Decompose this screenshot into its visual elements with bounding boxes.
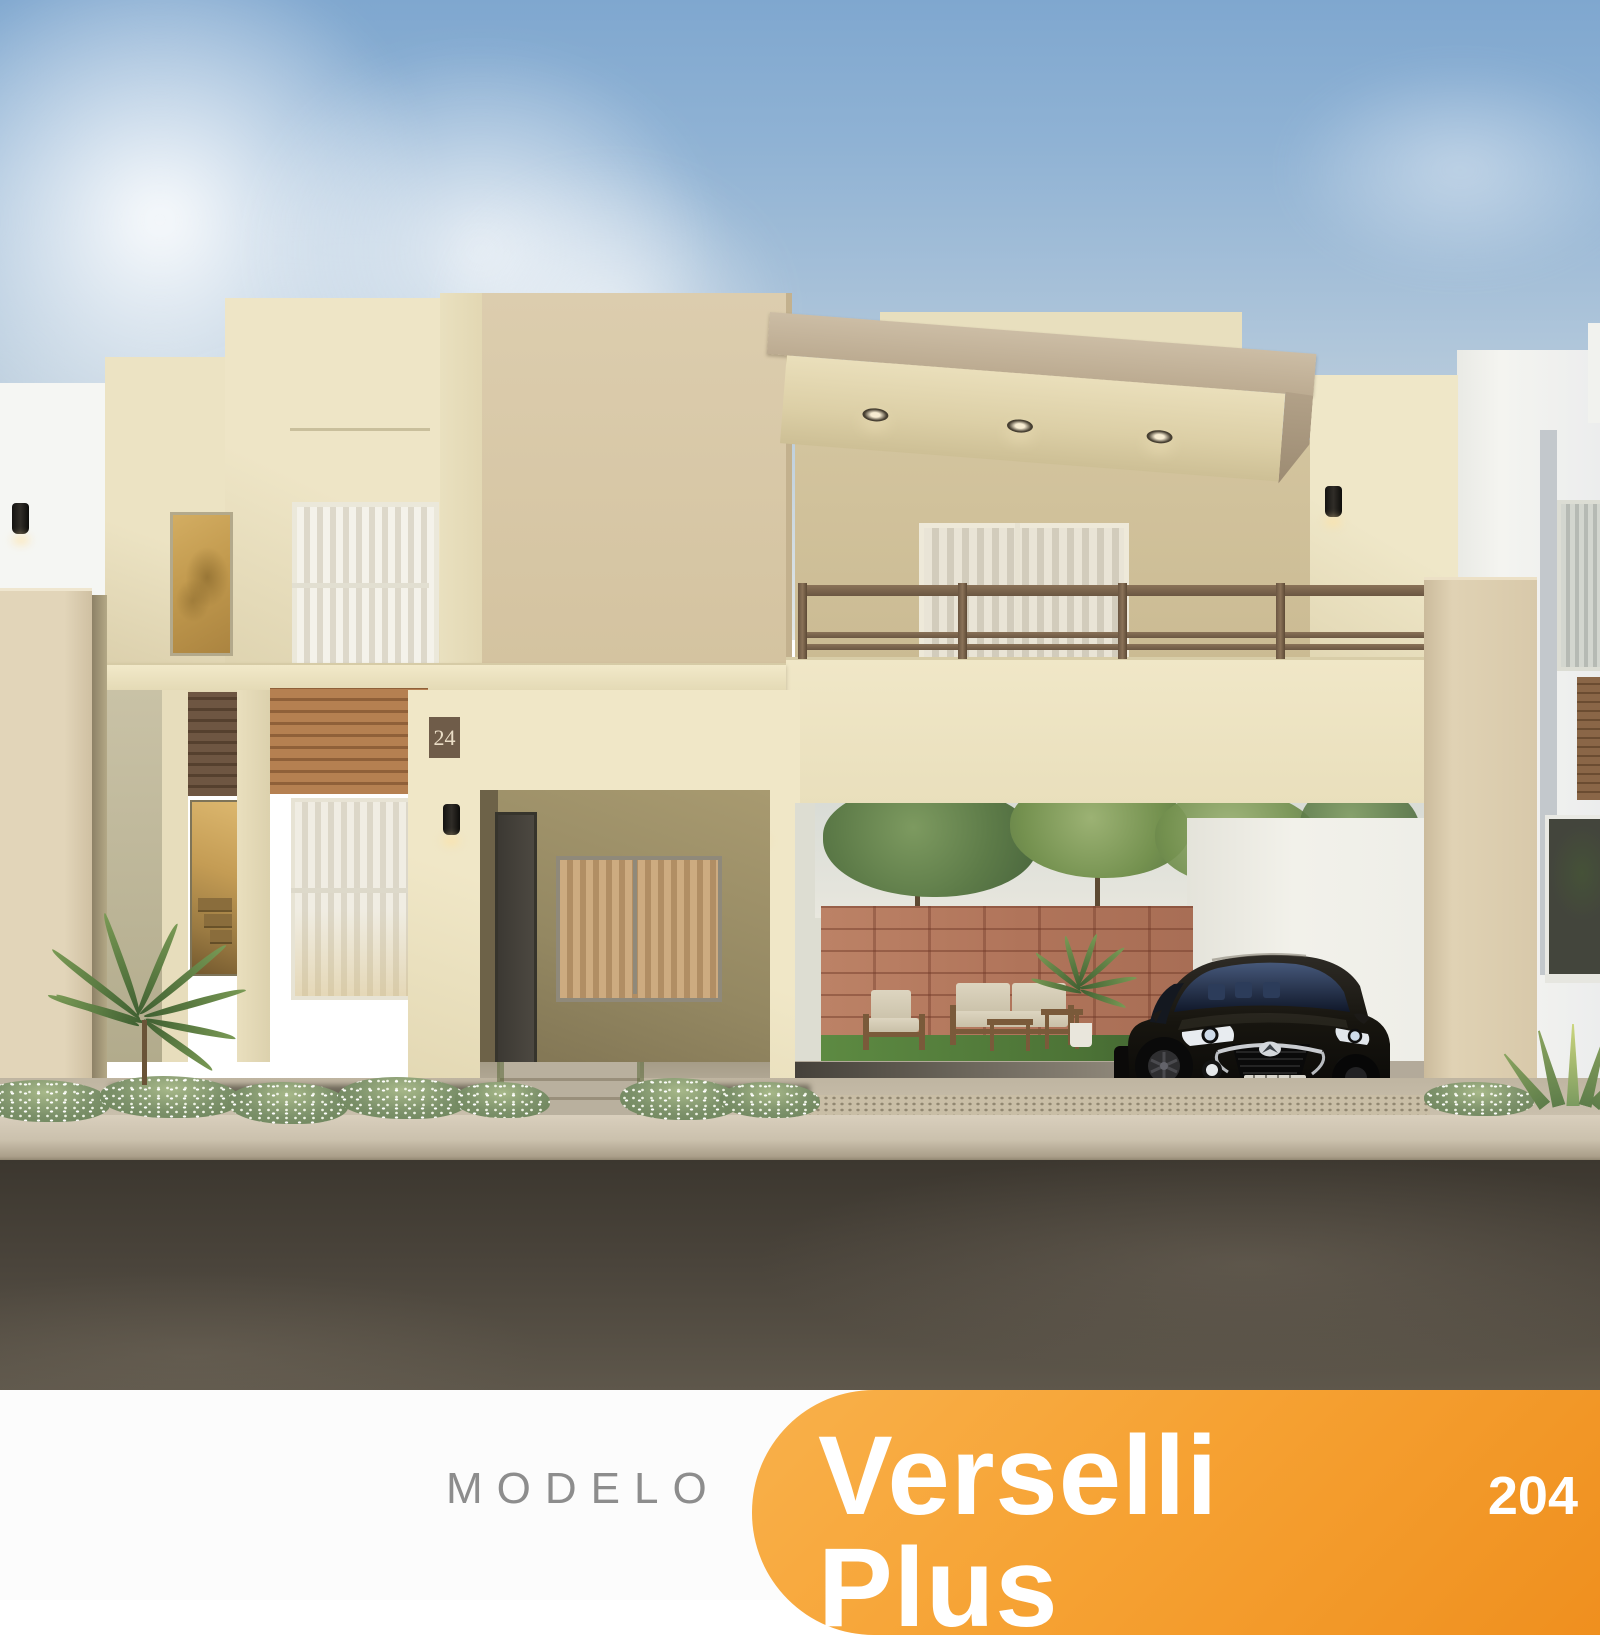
window-bar xyxy=(292,583,429,588)
right-neighbor-upper xyxy=(1588,323,1600,423)
potted-plant xyxy=(1040,923,1120,1053)
flower-bush xyxy=(720,1082,820,1118)
lamp-glow xyxy=(1320,514,1346,530)
lamp-glow xyxy=(438,833,464,849)
window-mullion xyxy=(633,856,637,994)
wood-slat-panel xyxy=(270,688,428,794)
facade-center-strip xyxy=(440,293,485,673)
gold-reflective-window xyxy=(170,512,233,656)
flower-bush xyxy=(455,1082,550,1118)
wall-lamp-icon xyxy=(1325,486,1342,517)
dark-window xyxy=(1545,815,1600,978)
facade-reveal-line xyxy=(290,428,430,431)
window-sill xyxy=(1545,974,1600,983)
stone-pillar-right xyxy=(1424,577,1537,1110)
wall-lamp-icon xyxy=(12,503,29,534)
model-number: 204 xyxy=(1488,1465,1578,1527)
house-number: 24 xyxy=(434,725,456,751)
flower-bush xyxy=(1424,1082,1534,1116)
modelo-label: MODELO xyxy=(446,1464,721,1514)
bedroom-window xyxy=(292,502,439,684)
real-estate-render-page: { "banner": { "modelo_label": "MODELO", … xyxy=(0,0,1600,1600)
lamp-glow xyxy=(8,532,34,548)
patio-armchair xyxy=(863,988,931,1050)
right-neighbor-wood-slats xyxy=(1577,677,1600,800)
agave-plant xyxy=(1528,1018,1600,1110)
entry-porch xyxy=(480,790,770,1095)
balcony-parapet xyxy=(786,657,1424,806)
house-number-plaque: 24 xyxy=(429,717,460,758)
asphalt-road xyxy=(0,1160,1600,1390)
wood-slat-panel xyxy=(188,692,237,796)
textured-stucco-tower xyxy=(482,293,792,665)
palm-plant xyxy=(30,920,250,1090)
patio-coffee-table xyxy=(987,1019,1033,1053)
floor-slab-band xyxy=(95,663,786,692)
model-name: Verselli Plus xyxy=(818,1420,1484,1644)
living-room-window xyxy=(291,798,416,1000)
sidewalk xyxy=(0,1115,1600,1160)
model-name-row: Verselli Plus 204 xyxy=(818,1420,1578,1644)
flower-bush xyxy=(338,1077,468,1119)
front-door xyxy=(495,812,537,1095)
blinds-window xyxy=(1557,500,1600,671)
porch-window xyxy=(556,856,722,1002)
gravel-strip xyxy=(790,1095,1430,1115)
wall-lamp-icon xyxy=(443,804,460,835)
window-bar xyxy=(291,888,408,893)
balcony-railing xyxy=(798,583,1447,659)
